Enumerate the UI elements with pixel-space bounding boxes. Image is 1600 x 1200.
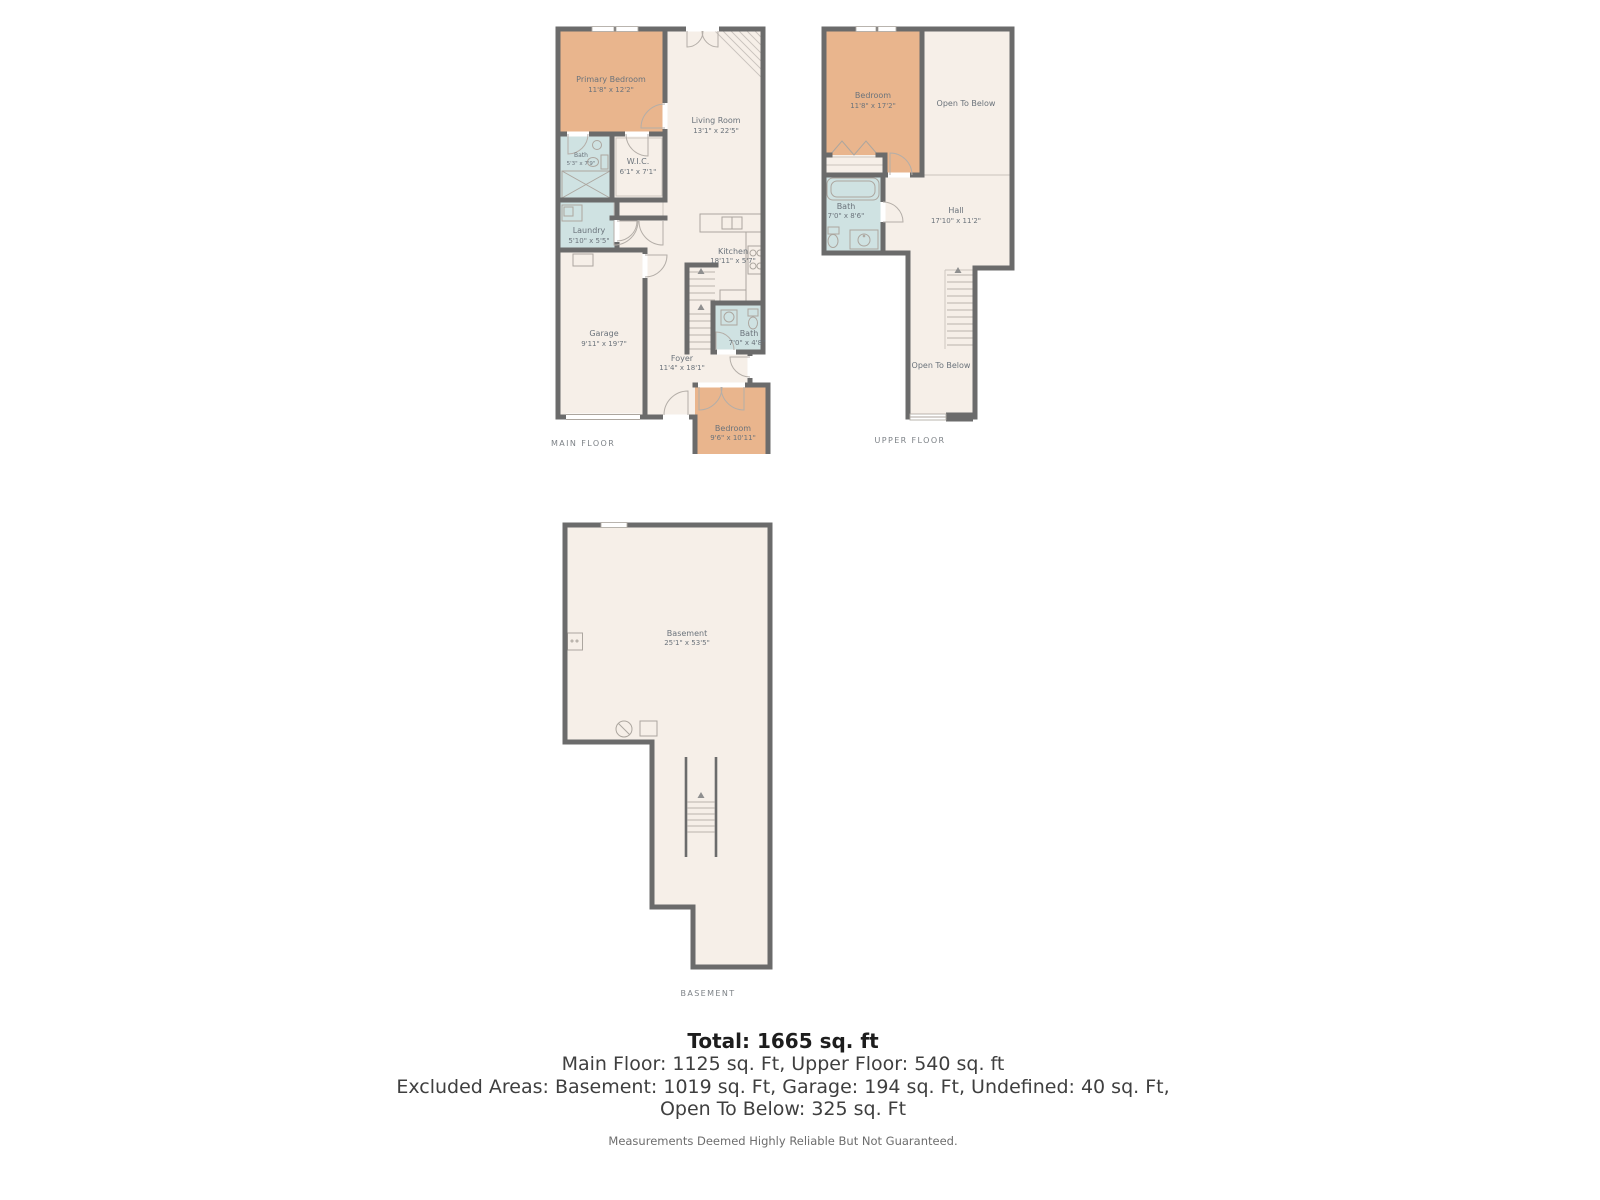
foyer-dims: 11'4" x 18'1" bbox=[659, 364, 705, 372]
upper-floor-caption: UPPER FLOOR bbox=[875, 436, 946, 445]
basement-label: Basement bbox=[667, 629, 707, 638]
bath-dims: 5'3" x 7'9" bbox=[567, 161, 596, 167]
door-opening bbox=[663, 103, 668, 129]
window-icon bbox=[616, 27, 638, 32]
laundry-label: Laundry bbox=[573, 226, 606, 235]
bedroom-upper-dims: 11'8" x 17'2" bbox=[850, 102, 896, 110]
door-opening bbox=[615, 220, 620, 242]
summary-excluded-line: Excluded Areas: Basement: 1019 sq. Ft, G… bbox=[0, 1076, 1566, 1099]
bedroom-upper-label: Bedroom bbox=[855, 91, 891, 100]
window-icon bbox=[592, 27, 614, 32]
upper-floor-plan: Bedroom 11'8" x 17'2" Open To Below Bath… bbox=[798, 22, 1018, 448]
door-opening bbox=[567, 132, 589, 137]
room-bedroom bbox=[695, 385, 768, 454]
primary-bedroom-label: Primary Bedroom bbox=[576, 75, 646, 84]
door-opening bbox=[888, 173, 910, 178]
garage-door-opening bbox=[566, 414, 640, 421]
open-to-below-label: Open To Below bbox=[937, 99, 996, 108]
floorplan-sheet: Primary Bedroom 11'8" x 12'2" Living Roo… bbox=[0, 0, 1600, 1200]
door-opening bbox=[698, 383, 745, 388]
foyer-label: Foyer bbox=[671, 354, 694, 363]
window-icon bbox=[878, 27, 896, 32]
wic-dims: 6'1" x 7'1" bbox=[620, 168, 657, 176]
wic-label: W.I.C. bbox=[627, 157, 650, 166]
summary-block: Total: 1665 sq. ft Main Floor: 1125 sq. … bbox=[0, 1030, 1566, 1148]
door-opening bbox=[663, 415, 689, 420]
wall-block bbox=[946, 413, 973, 422]
basement-caption: BASEMENT bbox=[680, 989, 735, 998]
kitchen-dims: 18'11" x 5'7" bbox=[710, 257, 756, 265]
kitchen-label: Kitchen bbox=[718, 247, 748, 256]
door-opening bbox=[748, 356, 753, 378]
living-room-dims: 13'1" x 22'5" bbox=[693, 127, 739, 135]
bedroom-dims: 9'6" x 10'11" bbox=[710, 434, 756, 442]
door-opening bbox=[686, 27, 719, 32]
garage-dims: 9'11" x 19'7" bbox=[581, 340, 627, 348]
door-opening bbox=[717, 350, 736, 355]
basement-floor-plan: Basement 25'1" x 53'5" BASEMENT bbox=[546, 503, 782, 1003]
bath-upper-label: Bath bbox=[837, 202, 856, 211]
main-floor-plan: Primary Bedroom 11'8" x 12'2" Living Roo… bbox=[546, 22, 772, 454]
basement-dims: 25'1" x 53'5" bbox=[664, 639, 710, 647]
window-icon bbox=[856, 27, 876, 32]
bath-label: Bath bbox=[574, 152, 588, 159]
primary-bedroom-dims: 11'8" x 12'2" bbox=[588, 86, 634, 94]
door-opening bbox=[643, 254, 648, 278]
open-to-below-stairs-label: Open To Below bbox=[912, 361, 971, 370]
main-floor-caption: MAIN FLOOR bbox=[551, 439, 615, 448]
summary-open-below-line: Open To Below: 325 sq. Ft bbox=[0, 1098, 1566, 1121]
bath2-label: Bath bbox=[740, 329, 759, 338]
summary-disclaimer: Measurements Deemed Highly Reliable But … bbox=[0, 1134, 1566, 1148]
summary-total: Total: 1665 sq. ft bbox=[0, 1030, 1566, 1053]
living-room-label: Living Room bbox=[691, 116, 740, 125]
bedroom-label: Bedroom bbox=[715, 424, 751, 433]
window-icon bbox=[910, 414, 946, 420]
summary-floors-line: Main Floor: 1125 sq. Ft, Upper Floor: 54… bbox=[0, 1053, 1566, 1076]
hall-label: Hall bbox=[948, 206, 963, 215]
laundry-dims: 5'10" x 5'5" bbox=[568, 237, 609, 245]
hall-dims: 17'10" x 11'2" bbox=[931, 217, 981, 225]
bath-upper-dims: 7'0" x 8'6" bbox=[828, 212, 865, 220]
basement-footprint bbox=[565, 525, 770, 967]
door-opening bbox=[625, 132, 649, 137]
window-icon bbox=[601, 523, 627, 528]
bath2-dims: 7'0" x 4'8" bbox=[729, 339, 766, 347]
garage-label: Garage bbox=[589, 329, 618, 338]
door-opening bbox=[881, 202, 886, 222]
